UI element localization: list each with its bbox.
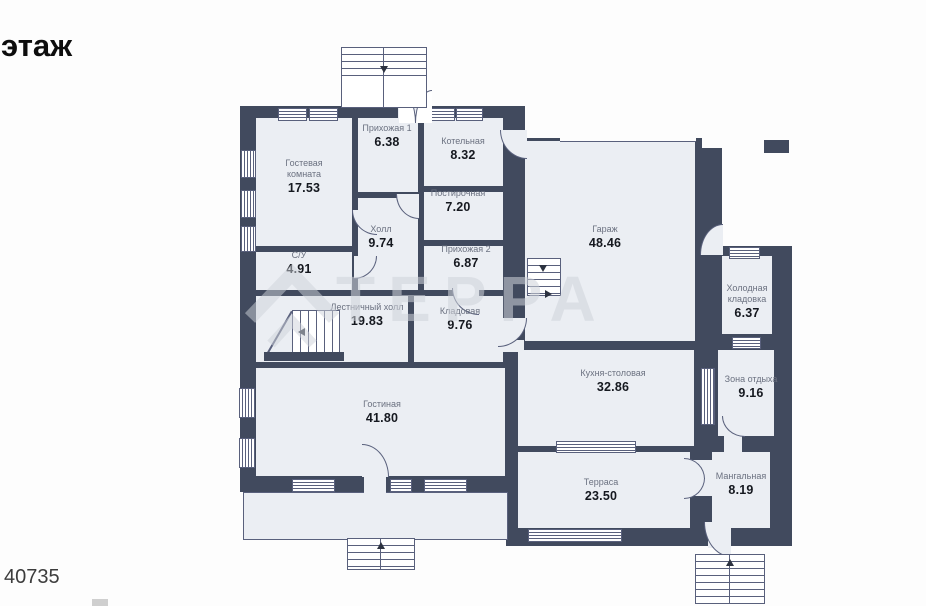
room-area: 6.38 xyxy=(362,135,411,149)
window-left-2 xyxy=(241,190,256,218)
room-name: Гостиная xyxy=(363,399,401,410)
room-name: Постирочная xyxy=(431,188,485,199)
window-cold-pantry-top xyxy=(729,247,760,259)
room-name: Гараж xyxy=(589,224,621,235)
window-living-2 xyxy=(390,479,412,492)
room-label-hallway-1: Прихожая 1 6.38 xyxy=(362,123,411,149)
room-label-rest-zone: Зона отдыха 9.16 xyxy=(725,374,778,400)
bbq-stairs xyxy=(695,554,765,604)
room-name: Холодная кладовка xyxy=(715,283,779,305)
room-name: Терраса xyxy=(584,477,619,488)
room-name: Гостевая комната xyxy=(268,158,340,180)
porch-under-living xyxy=(243,492,508,540)
room-name: Прихожая 2 xyxy=(441,244,490,255)
window-left-3 xyxy=(241,226,256,252)
bbq-stairs-arrow-icon xyxy=(726,559,734,566)
bottom-edge-artifact xyxy=(92,599,108,606)
room-area: 17.53 xyxy=(268,181,340,195)
room-label-hall: Холл 9.74 xyxy=(368,224,393,250)
room-label-laundry: Постирочная 7.20 xyxy=(431,188,485,214)
room-area: 23.50 xyxy=(584,489,619,503)
room-label-bbq: Мангальная 8.19 xyxy=(716,471,766,497)
room-name: Зона отдыха xyxy=(725,374,778,385)
room-area: 41.80 xyxy=(363,411,401,425)
window-top-1 xyxy=(278,108,307,121)
room-name: Мангальная xyxy=(716,471,766,482)
room-area: 32.86 xyxy=(580,380,645,394)
room-label-garage: Гараж 48.46 xyxy=(589,224,621,250)
door-bbq-stairs xyxy=(704,522,731,557)
room-label-boiler: Котельная 8.32 xyxy=(441,136,485,162)
room-area: 8.19 xyxy=(716,483,766,497)
entrance-stairs-arrow-icon xyxy=(380,66,388,73)
window-cold-rest-divider xyxy=(732,337,761,349)
room-label-kitchen: Кухня-столовая 32.86 xyxy=(580,368,645,394)
floor-title: этаж xyxy=(1,28,72,64)
room-kitchen xyxy=(518,350,694,446)
entrance-stairs xyxy=(341,47,427,108)
room-label-guest: Гостевая комната 17.53 xyxy=(268,158,340,195)
floor-plan-screenshot: этаж 40735 xyxy=(0,0,926,606)
room-label-terrace: Терраса 23.50 xyxy=(584,477,619,503)
room-area: 9.16 xyxy=(725,386,778,400)
room-label-cold-pantry: Холодная кладовка 6.37 xyxy=(715,283,779,320)
window-rest-zone-left xyxy=(701,368,715,425)
living-door-opening xyxy=(364,474,386,494)
room-name: Кухня-столовая xyxy=(580,368,645,379)
internal-staircase-base xyxy=(264,352,344,361)
window-living-1 xyxy=(292,479,335,492)
watermark-text: ТЕРРА xyxy=(336,262,609,336)
watermark-chevron-icon xyxy=(244,256,339,348)
window-terrace-bottom xyxy=(528,529,622,542)
porch-stairs-arrow-icon xyxy=(377,542,385,549)
room-area: 7.20 xyxy=(431,200,485,214)
room-area: 9.74 xyxy=(368,236,393,250)
room-name: Прихожая 1 xyxy=(362,123,411,134)
garage-door-opening xyxy=(560,122,696,142)
window-left-4 xyxy=(239,388,255,418)
porch-stairs xyxy=(347,538,415,570)
entrance-stairs-centerline xyxy=(383,48,384,107)
room-area: 8.32 xyxy=(441,148,485,162)
plan-number: 40735 xyxy=(4,566,60,589)
room-label-living: Гостиная 41.80 xyxy=(363,399,401,425)
window-top-4 xyxy=(456,108,483,121)
wall-top-right-stub xyxy=(764,140,789,153)
room-area: 6.37 xyxy=(715,306,779,320)
room-name: Холл xyxy=(368,224,393,235)
window-top-3 xyxy=(428,108,455,121)
room-name: Котельная xyxy=(441,136,485,147)
room-area: 48.46 xyxy=(589,236,621,250)
window-kitchen-terrace xyxy=(556,441,636,453)
window-living-3 xyxy=(424,479,467,492)
window-left-5 xyxy=(239,438,255,468)
window-top-2 xyxy=(309,108,338,121)
entrance-stairs-treads xyxy=(342,48,426,80)
window-left-1 xyxy=(241,150,256,178)
